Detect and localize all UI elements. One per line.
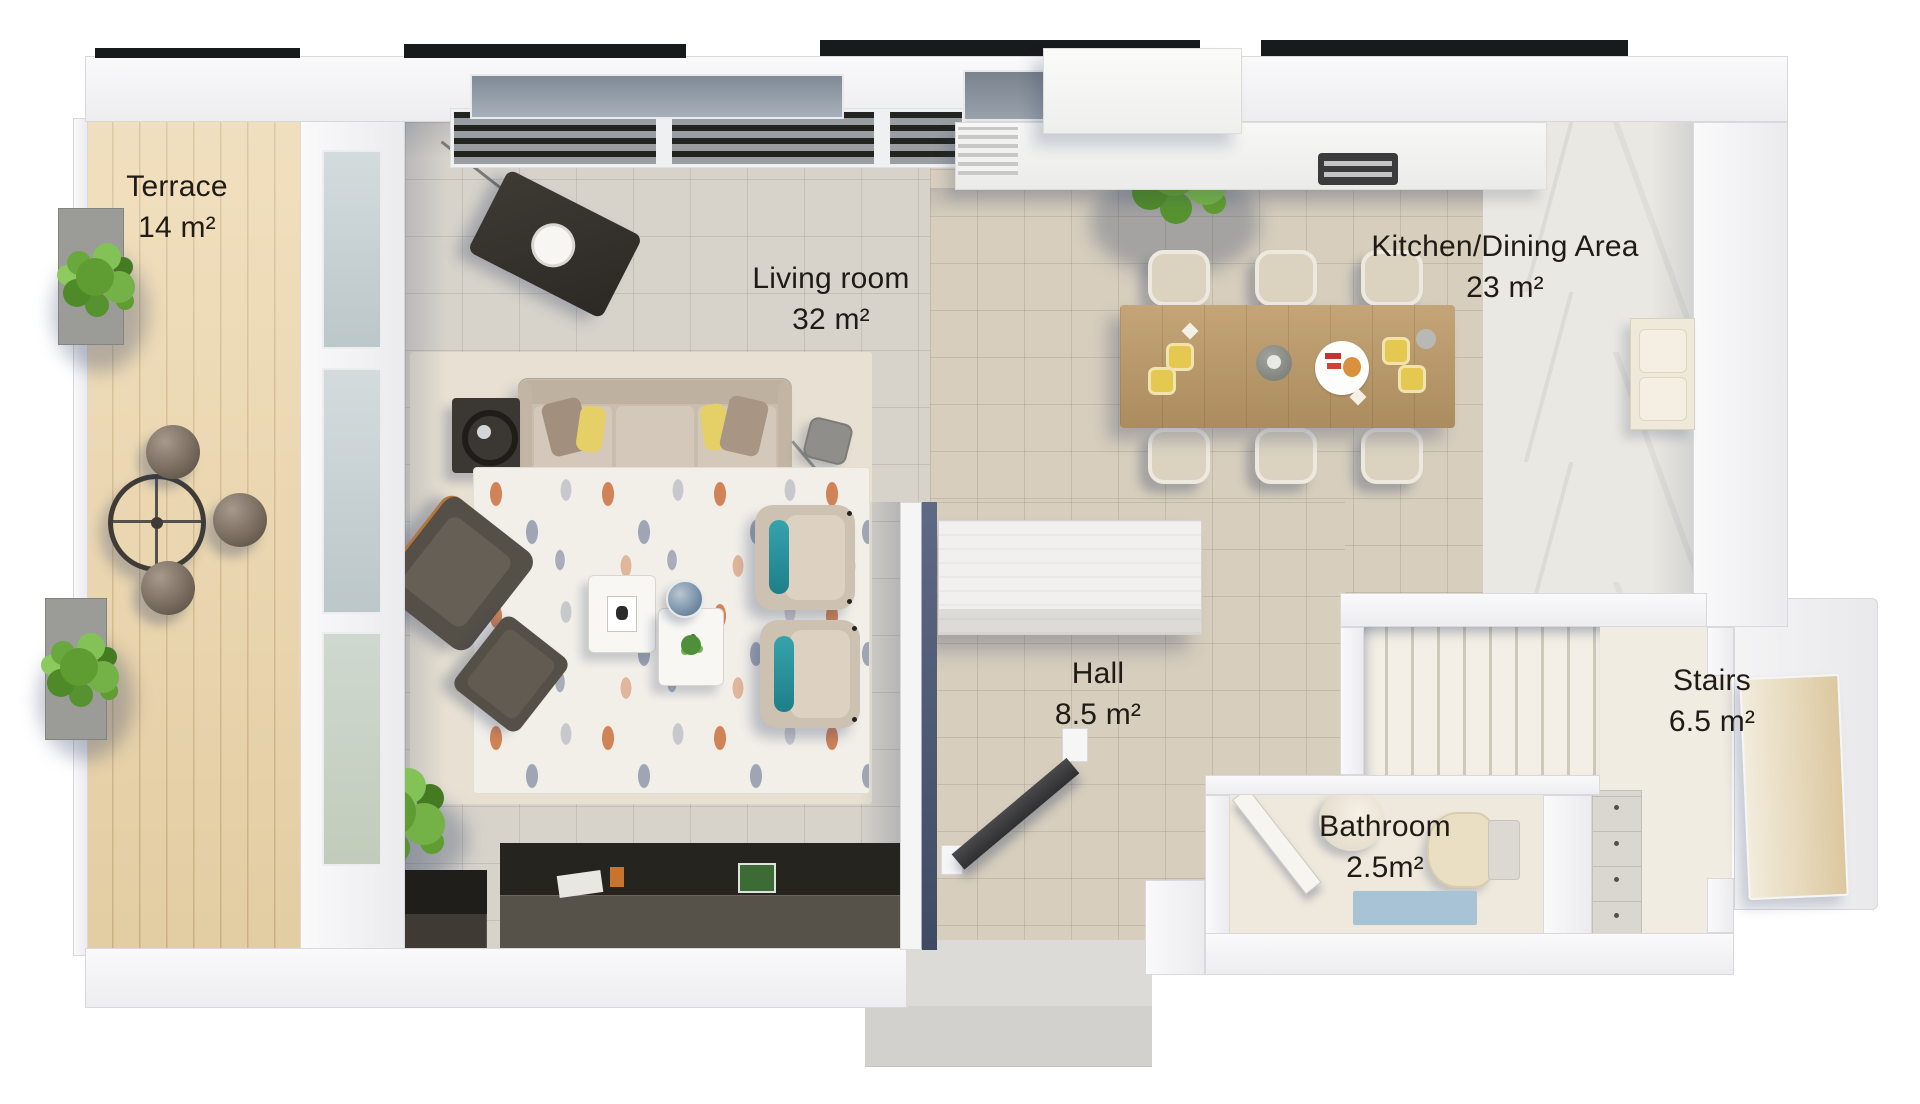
table-lamp-ring [462,410,518,466]
armchair-teal [760,620,860,728]
room-label-terrace: Terrace 14 m² [126,167,227,249]
vestibule-wall-stub [1145,880,1205,975]
slat-panel [890,112,962,164]
bathroom-top-wall [1205,775,1600,795]
staircase-treads [1362,627,1600,777]
napkin [1182,323,1199,340]
armchair-seat [785,515,845,600]
coffee-table [588,575,656,653]
armchair-teal [755,505,855,610]
cooktop-grate [1324,161,1392,166]
room-area: 8.5 m² [1055,695,1141,736]
armchair-seat [790,630,850,718]
dining-chair [1361,428,1423,484]
room-name: Living room [752,259,909,300]
side-table [452,398,520,473]
table-art [607,596,637,632]
table-lamp [477,425,491,439]
dining-chair [1255,250,1317,306]
sink-basin [1639,329,1687,373]
console-books [738,863,776,893]
partition-side-face [922,502,937,950]
chair-leg [852,626,857,631]
cooktop [1318,153,1398,185]
pendant-lamp [524,216,583,275]
room-area: 14 m² [126,208,227,249]
food-red [1325,353,1341,359]
kitchen-island-hood [1043,48,1242,134]
room-area: 6.5 m² [1669,702,1755,743]
glass-side-table [666,580,704,618]
stairs-left-wall [1340,627,1364,775]
armchair-cushion-teal [769,520,789,594]
stairs-cabinet [1592,790,1642,937]
window-glass [322,368,382,614]
room-label-bathroom: Bathroom 2.5m² [1319,807,1451,889]
roof-edge [1261,40,1628,56]
kettle [1416,329,1436,349]
dining-chair [1148,250,1210,306]
terrace-chair [213,493,267,547]
sink-basin [1639,377,1687,421]
roof-edge [404,44,686,58]
room-area: 2.5m² [1319,848,1451,889]
bowl-center [1267,355,1281,369]
chair-leg [847,599,852,604]
console-item-orange [610,867,624,887]
food-red [1327,363,1341,369]
stairs-top-wall [1340,593,1707,627]
room-area: 32 m² [752,300,909,341]
food-orange [1343,357,1361,377]
hall-wardrobe [938,520,1202,635]
kitchen-sink-unit [1630,318,1695,430]
chair-leg [847,511,852,516]
bottom-wall-right [1205,933,1734,975]
table-hub [151,517,163,529]
dining-chair [1148,428,1210,484]
terrace-chair [141,561,195,615]
slat-panel [672,112,874,164]
coffee-table [658,608,724,686]
dining-chair [1255,428,1317,484]
room-label-kitchen-dining: Kitchen/Dining Area 23 m² [1371,227,1638,309]
terrace-table [108,474,206,572]
floor-plan: Terrace 14 m² Living room 32 m² Kitchen/… [0,0,1920,1104]
room-name: Kitchen/Dining Area [1371,227,1638,268]
cabinet-knobs [1614,805,1619,810]
cooktop-grate [1324,172,1392,177]
plate-yellow [1398,365,1426,393]
roof-edge [95,48,300,58]
serving-bowl [1256,345,1292,381]
dining-table [1120,305,1455,428]
counter-vent [958,127,1018,175]
bath-mat [1353,891,1477,925]
bottom-wall-left [85,948,907,1008]
terrace-chair [146,425,200,479]
right-wall [1693,122,1788,627]
entry-door-leaf [1739,674,1849,900]
room-label-stairs: Stairs 6.5 m² [1669,661,1755,743]
clerestory-window [470,74,844,119]
stairs-right-wall [1707,878,1734,933]
platter [1315,341,1369,395]
entry-porch-slab [865,940,1152,1067]
window-wall [300,118,405,956]
plate-yellow [1382,337,1410,365]
terrace-plant [60,648,98,686]
toilet-tank [1488,820,1520,880]
window-glass [322,150,382,349]
armchair-cushion-teal [774,636,794,712]
room-name: Terrace [126,167,227,208]
plate-yellow [1148,367,1176,395]
room-area: 23 m² [1371,268,1638,309]
table-mini-plant [681,635,701,655]
bathroom-left-wall [1205,795,1230,935]
room-label-living-room: Living room 32 m² [752,259,909,341]
art-figure [616,606,628,620]
media-console [500,843,907,958]
room-name: Stairs [1669,661,1755,702]
window-glass [322,632,382,866]
room-name: Hall [1055,654,1141,695]
room-label-hall: Hall 8.5 m² [1055,654,1141,736]
living-hall-partition [900,502,937,950]
room-name: Bathroom [1319,807,1451,848]
terrace-plant [76,258,114,296]
bathroom-right-wall [1543,795,1592,935]
chair-leg [852,717,857,722]
slat-panel [454,112,656,164]
